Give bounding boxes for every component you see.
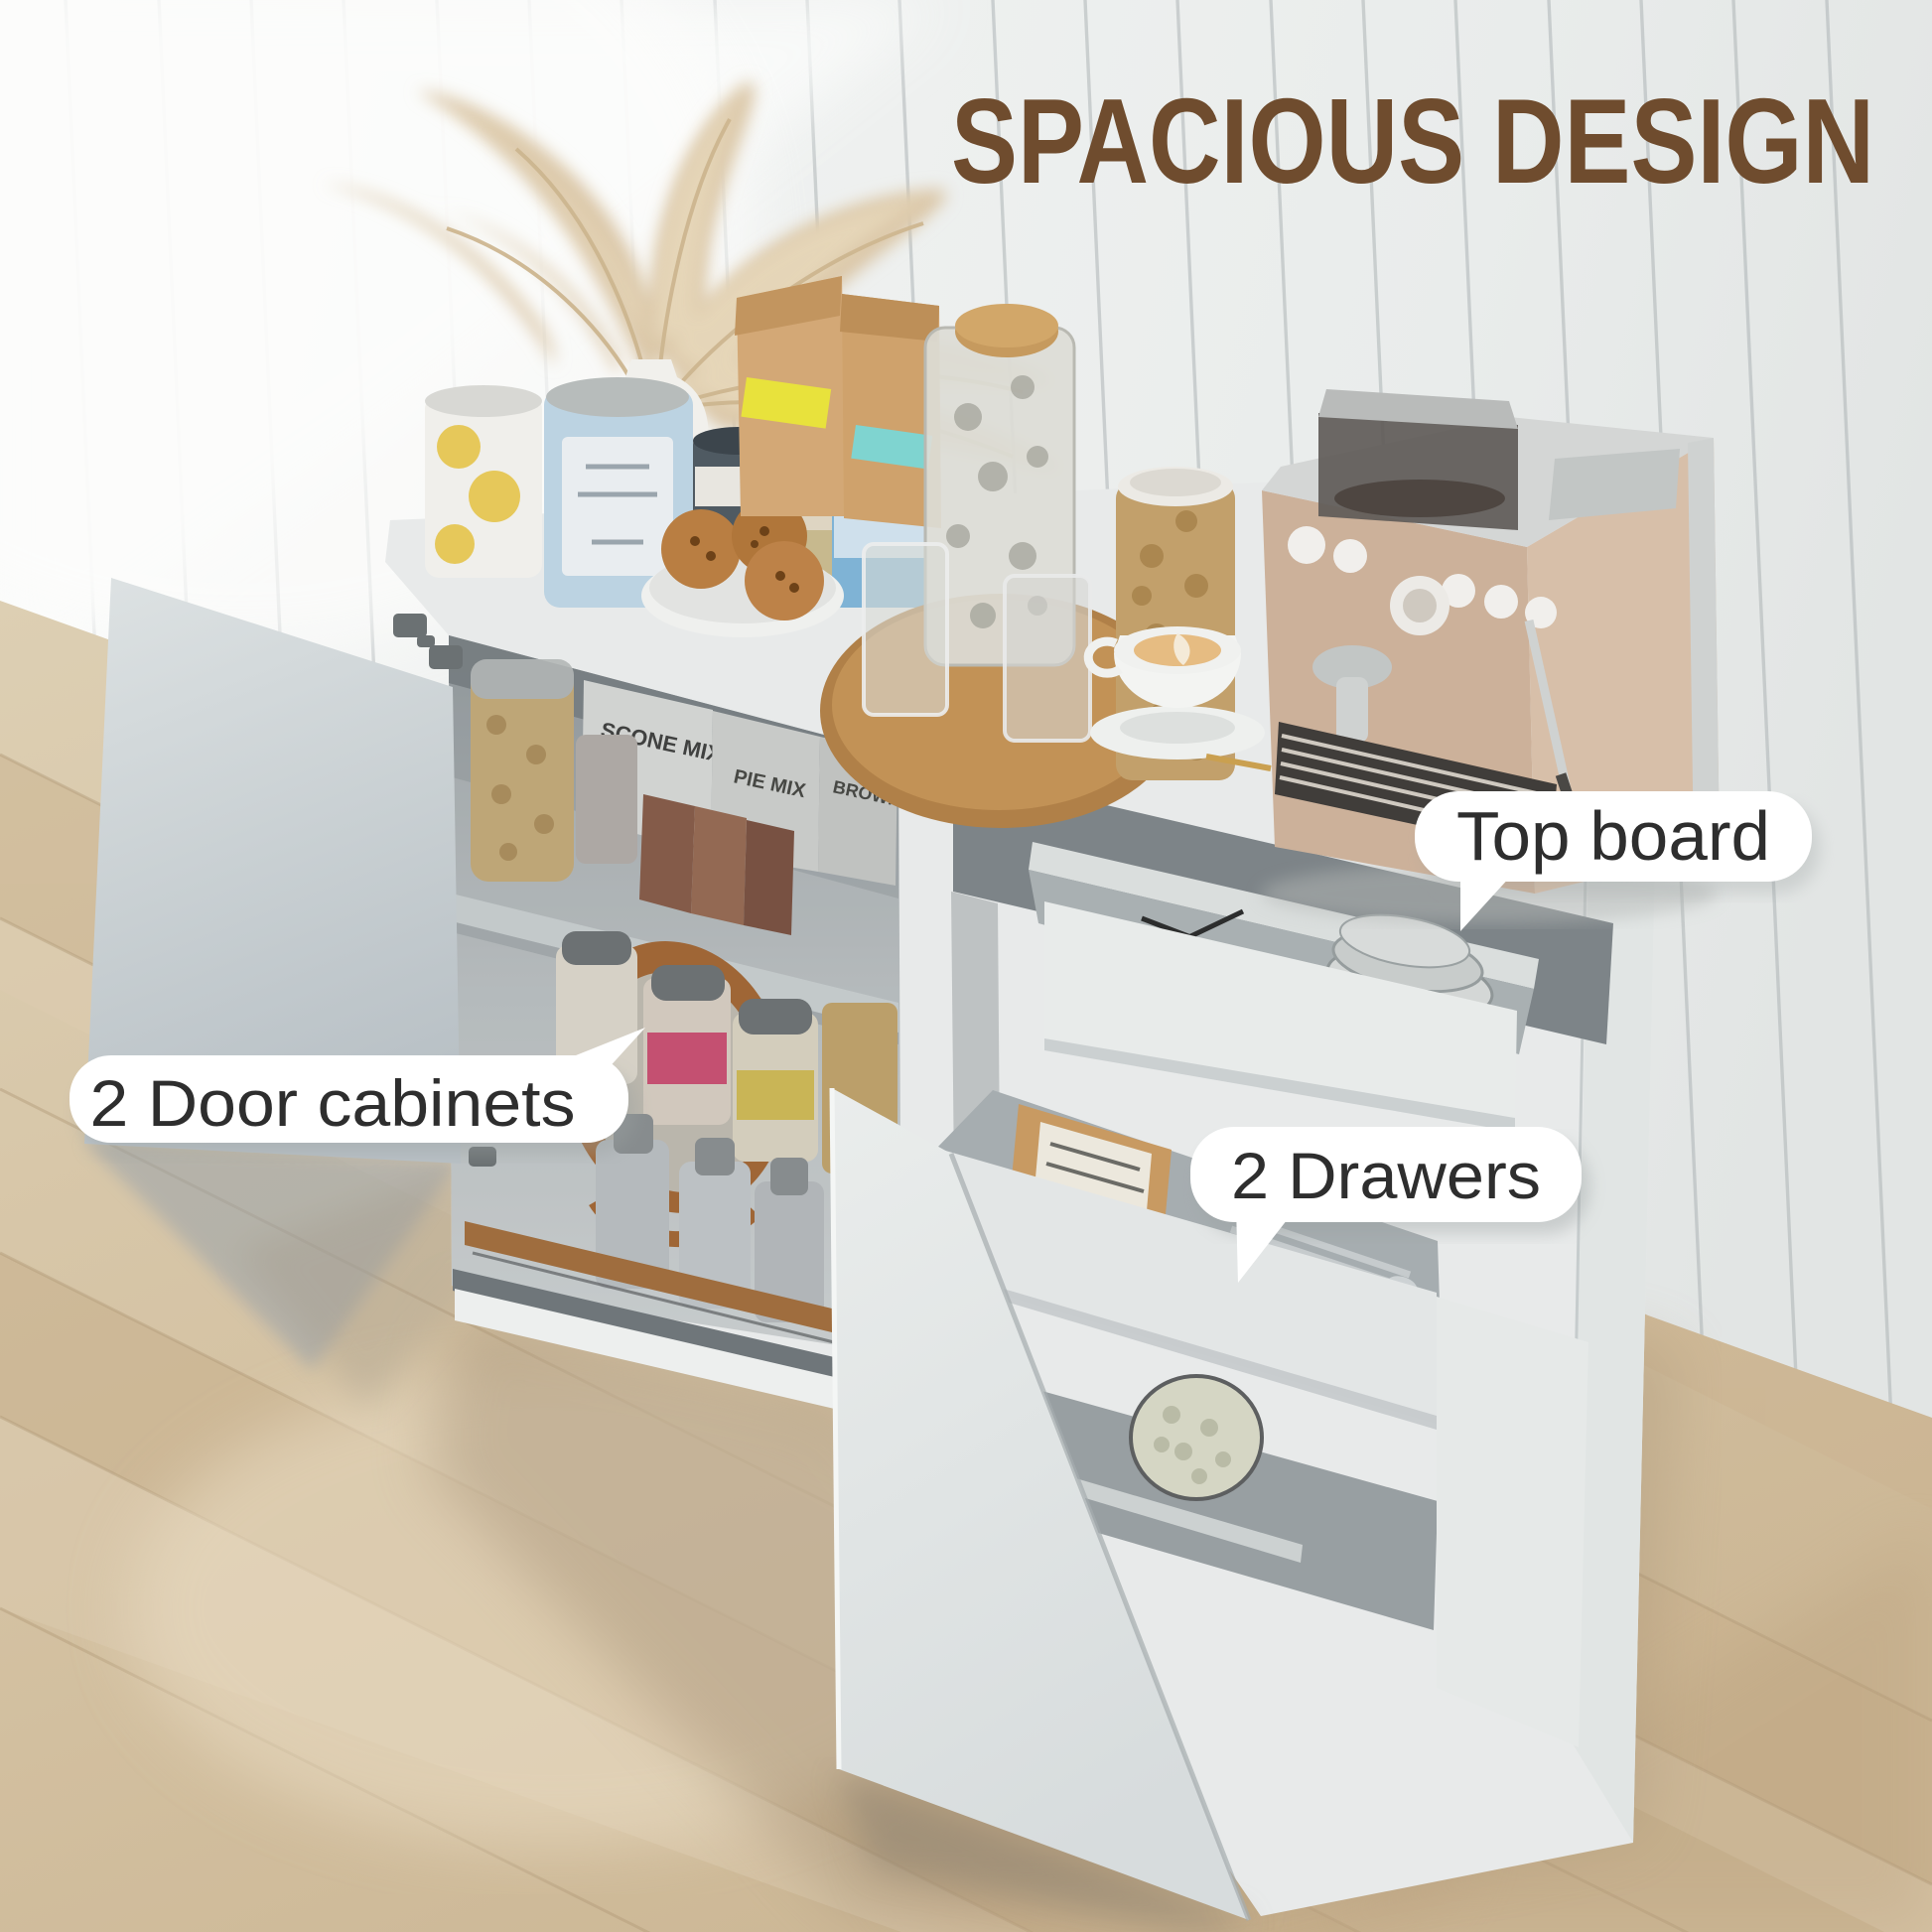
svg-text:2 Door cabinets: 2 Door cabinets bbox=[90, 1066, 576, 1140]
svg-text:Top board: Top board bbox=[1456, 797, 1770, 875]
svg-text:SPACIOUS DESIGN: SPACIOUS DESIGN bbox=[951, 73, 1874, 208]
svg-text:2 Drawers: 2 Drawers bbox=[1231, 1139, 1541, 1212]
